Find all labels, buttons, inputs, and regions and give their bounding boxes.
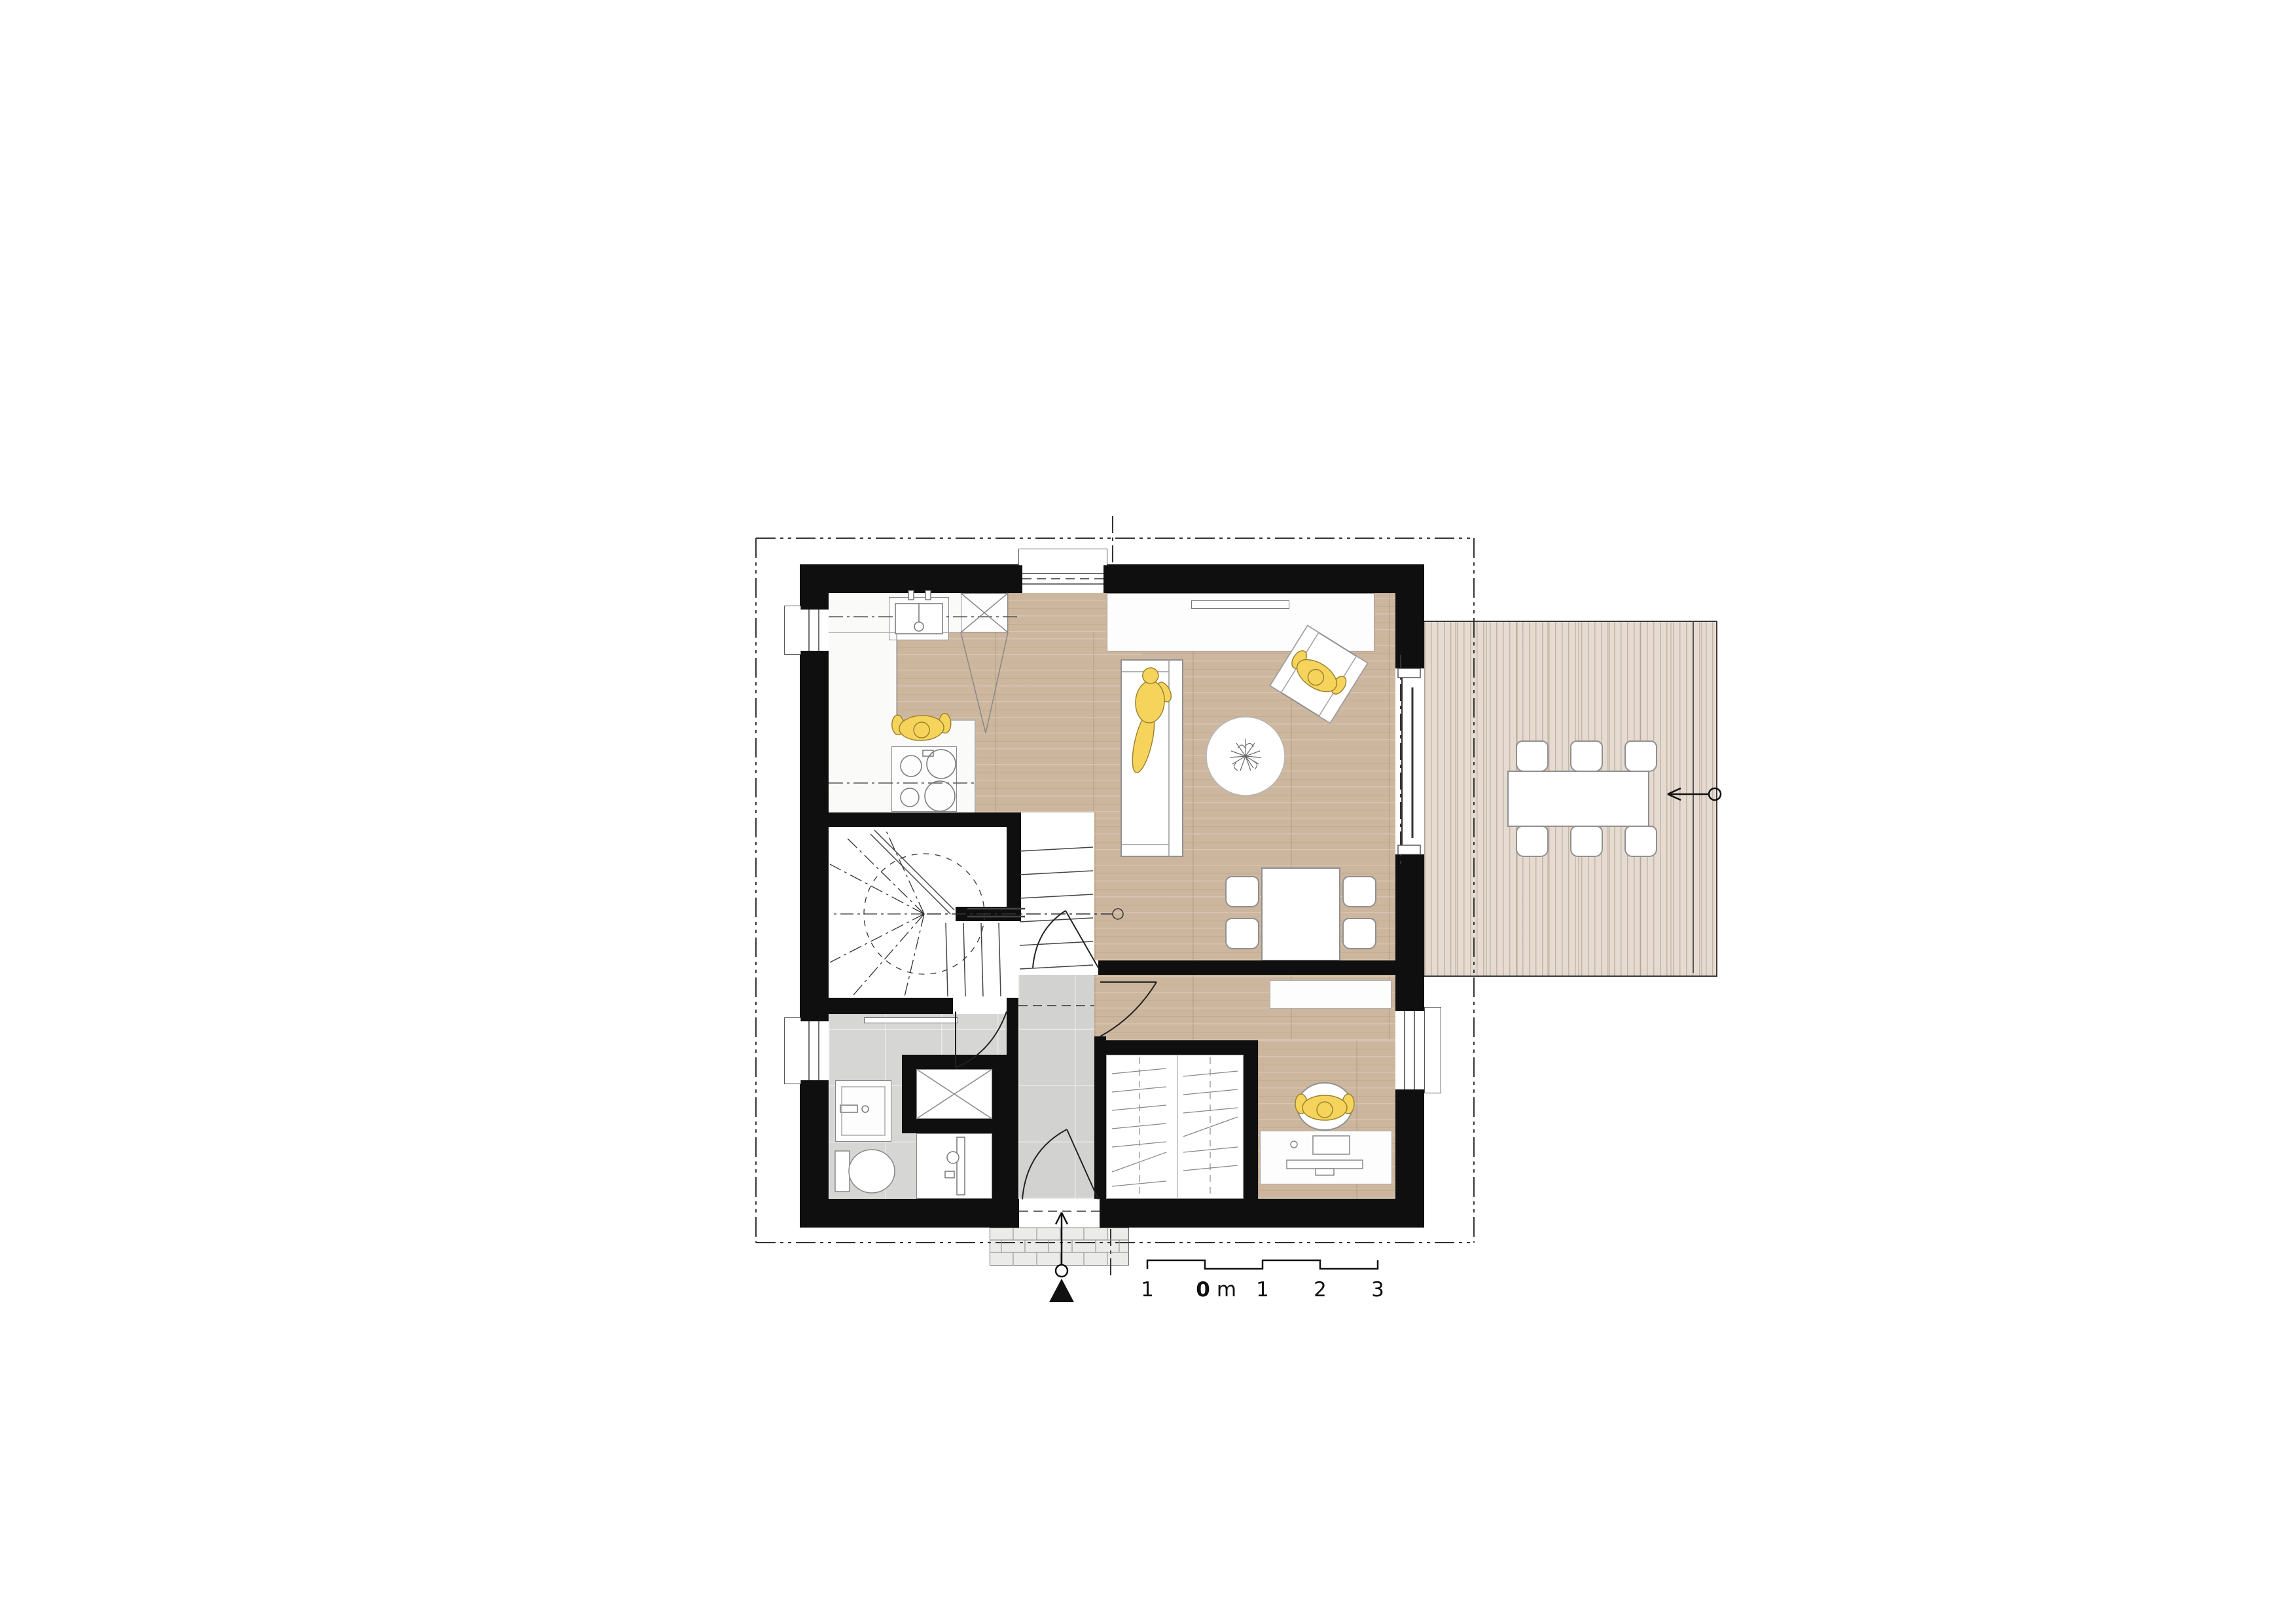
- wall-kitchen-stair: [800, 812, 1021, 827]
- scale-label-1-left: 1: [1141, 1278, 1154, 1302]
- wall-right: [1395, 1089, 1424, 1228]
- bathroom-radiator: [864, 1017, 958, 1023]
- scale-label-1-right: 1: [1256, 1278, 1269, 1302]
- scale-label-unit: m: [1217, 1278, 1236, 1302]
- window-office: [1395, 1011, 1424, 1089]
- wood-strip-under-top-window: [1008, 593, 1106, 632]
- wall-shower-left: [902, 1055, 916, 1119]
- wall-hall-right: [1094, 1036, 1106, 1199]
- entrance-porch: [990, 1228, 1129, 1266]
- window-sill-top: [1018, 549, 1107, 566]
- shower: [916, 1069, 992, 1119]
- terrace-chair: [1516, 826, 1549, 857]
- wall-closet-top: [1106, 1040, 1258, 1055]
- kitchen-sink-counter: [889, 597, 949, 640]
- utility-closet: [916, 1133, 992, 1199]
- terrace-chair: [1570, 826, 1603, 857]
- kitchen-tall-cabinet: [961, 593, 1008, 632]
- scale-label-2: 2: [1314, 1278, 1327, 1302]
- wall-top: [800, 564, 1022, 593]
- wall-stair-jog: [956, 907, 1021, 921]
- wall-shower-bottom: [902, 1119, 1007, 1133]
- terrace-table: [1507, 771, 1649, 827]
- dining-chair: [1342, 918, 1376, 949]
- wall-closet-office: [1244, 1040, 1258, 1199]
- office-wardrobe: [1270, 980, 1391, 1009]
- window-bathroom: [800, 1021, 829, 1080]
- wall-stair-hall: [800, 998, 953, 1014]
- wall-bottom: [800, 1199, 1019, 1228]
- wall-shower-top: [902, 1055, 1007, 1069]
- wall-shower-right: [992, 1055, 1007, 1199]
- wall-right: [1395, 854, 1424, 1011]
- dining-table: [1261, 867, 1340, 961]
- wall-left: [800, 1080, 829, 1228]
- terrace-chair: [1624, 826, 1657, 857]
- window-sill-office: [1424, 1007, 1441, 1093]
- wall-living-south: [1098, 960, 1395, 975]
- sofa: [1121, 659, 1183, 857]
- wash-basin: [835, 1080, 891, 1142]
- wall-left: [800, 564, 829, 610]
- wall-bottom: [1100, 1199, 1424, 1228]
- dining-chair: [1342, 876, 1376, 907]
- wall-right: [1395, 564, 1424, 668]
- terrace-chair: [1624, 740, 1657, 772]
- scale-bar: [1147, 1260, 1378, 1269]
- wardrobe-closets: [1106, 1055, 1244, 1199]
- terrace-chair: [1516, 740, 1549, 772]
- dining-chair: [1225, 918, 1259, 949]
- office-desk: [1260, 1131, 1392, 1184]
- window-sill-bathroom: [784, 1017, 801, 1084]
- sliding-door-terrace: [1395, 668, 1424, 854]
- window-sill-kitchen: [784, 606, 801, 655]
- window-kitchen: [800, 610, 829, 651]
- wall-top: [1103, 564, 1424, 593]
- scale-label-zero: 0: [1196, 1278, 1210, 1302]
- north-triangle-icon: [1049, 1279, 1074, 1302]
- tv-on-sideboard: [1191, 600, 1289, 609]
- wall-left: [800, 651, 829, 1021]
- wall-hall-left: [1007, 998, 1018, 1199]
- terrace-chair: [1570, 740, 1603, 772]
- scale-label-3: 3: [1371, 1278, 1384, 1302]
- floor-plan-canvas: 1 0 m 1 2 3: [0, 0, 2296, 1623]
- cooktop: [891, 746, 957, 812]
- hallway-floor: [1018, 975, 1094, 1199]
- dining-chair: [1225, 876, 1259, 907]
- window-top: [1022, 564, 1103, 593]
